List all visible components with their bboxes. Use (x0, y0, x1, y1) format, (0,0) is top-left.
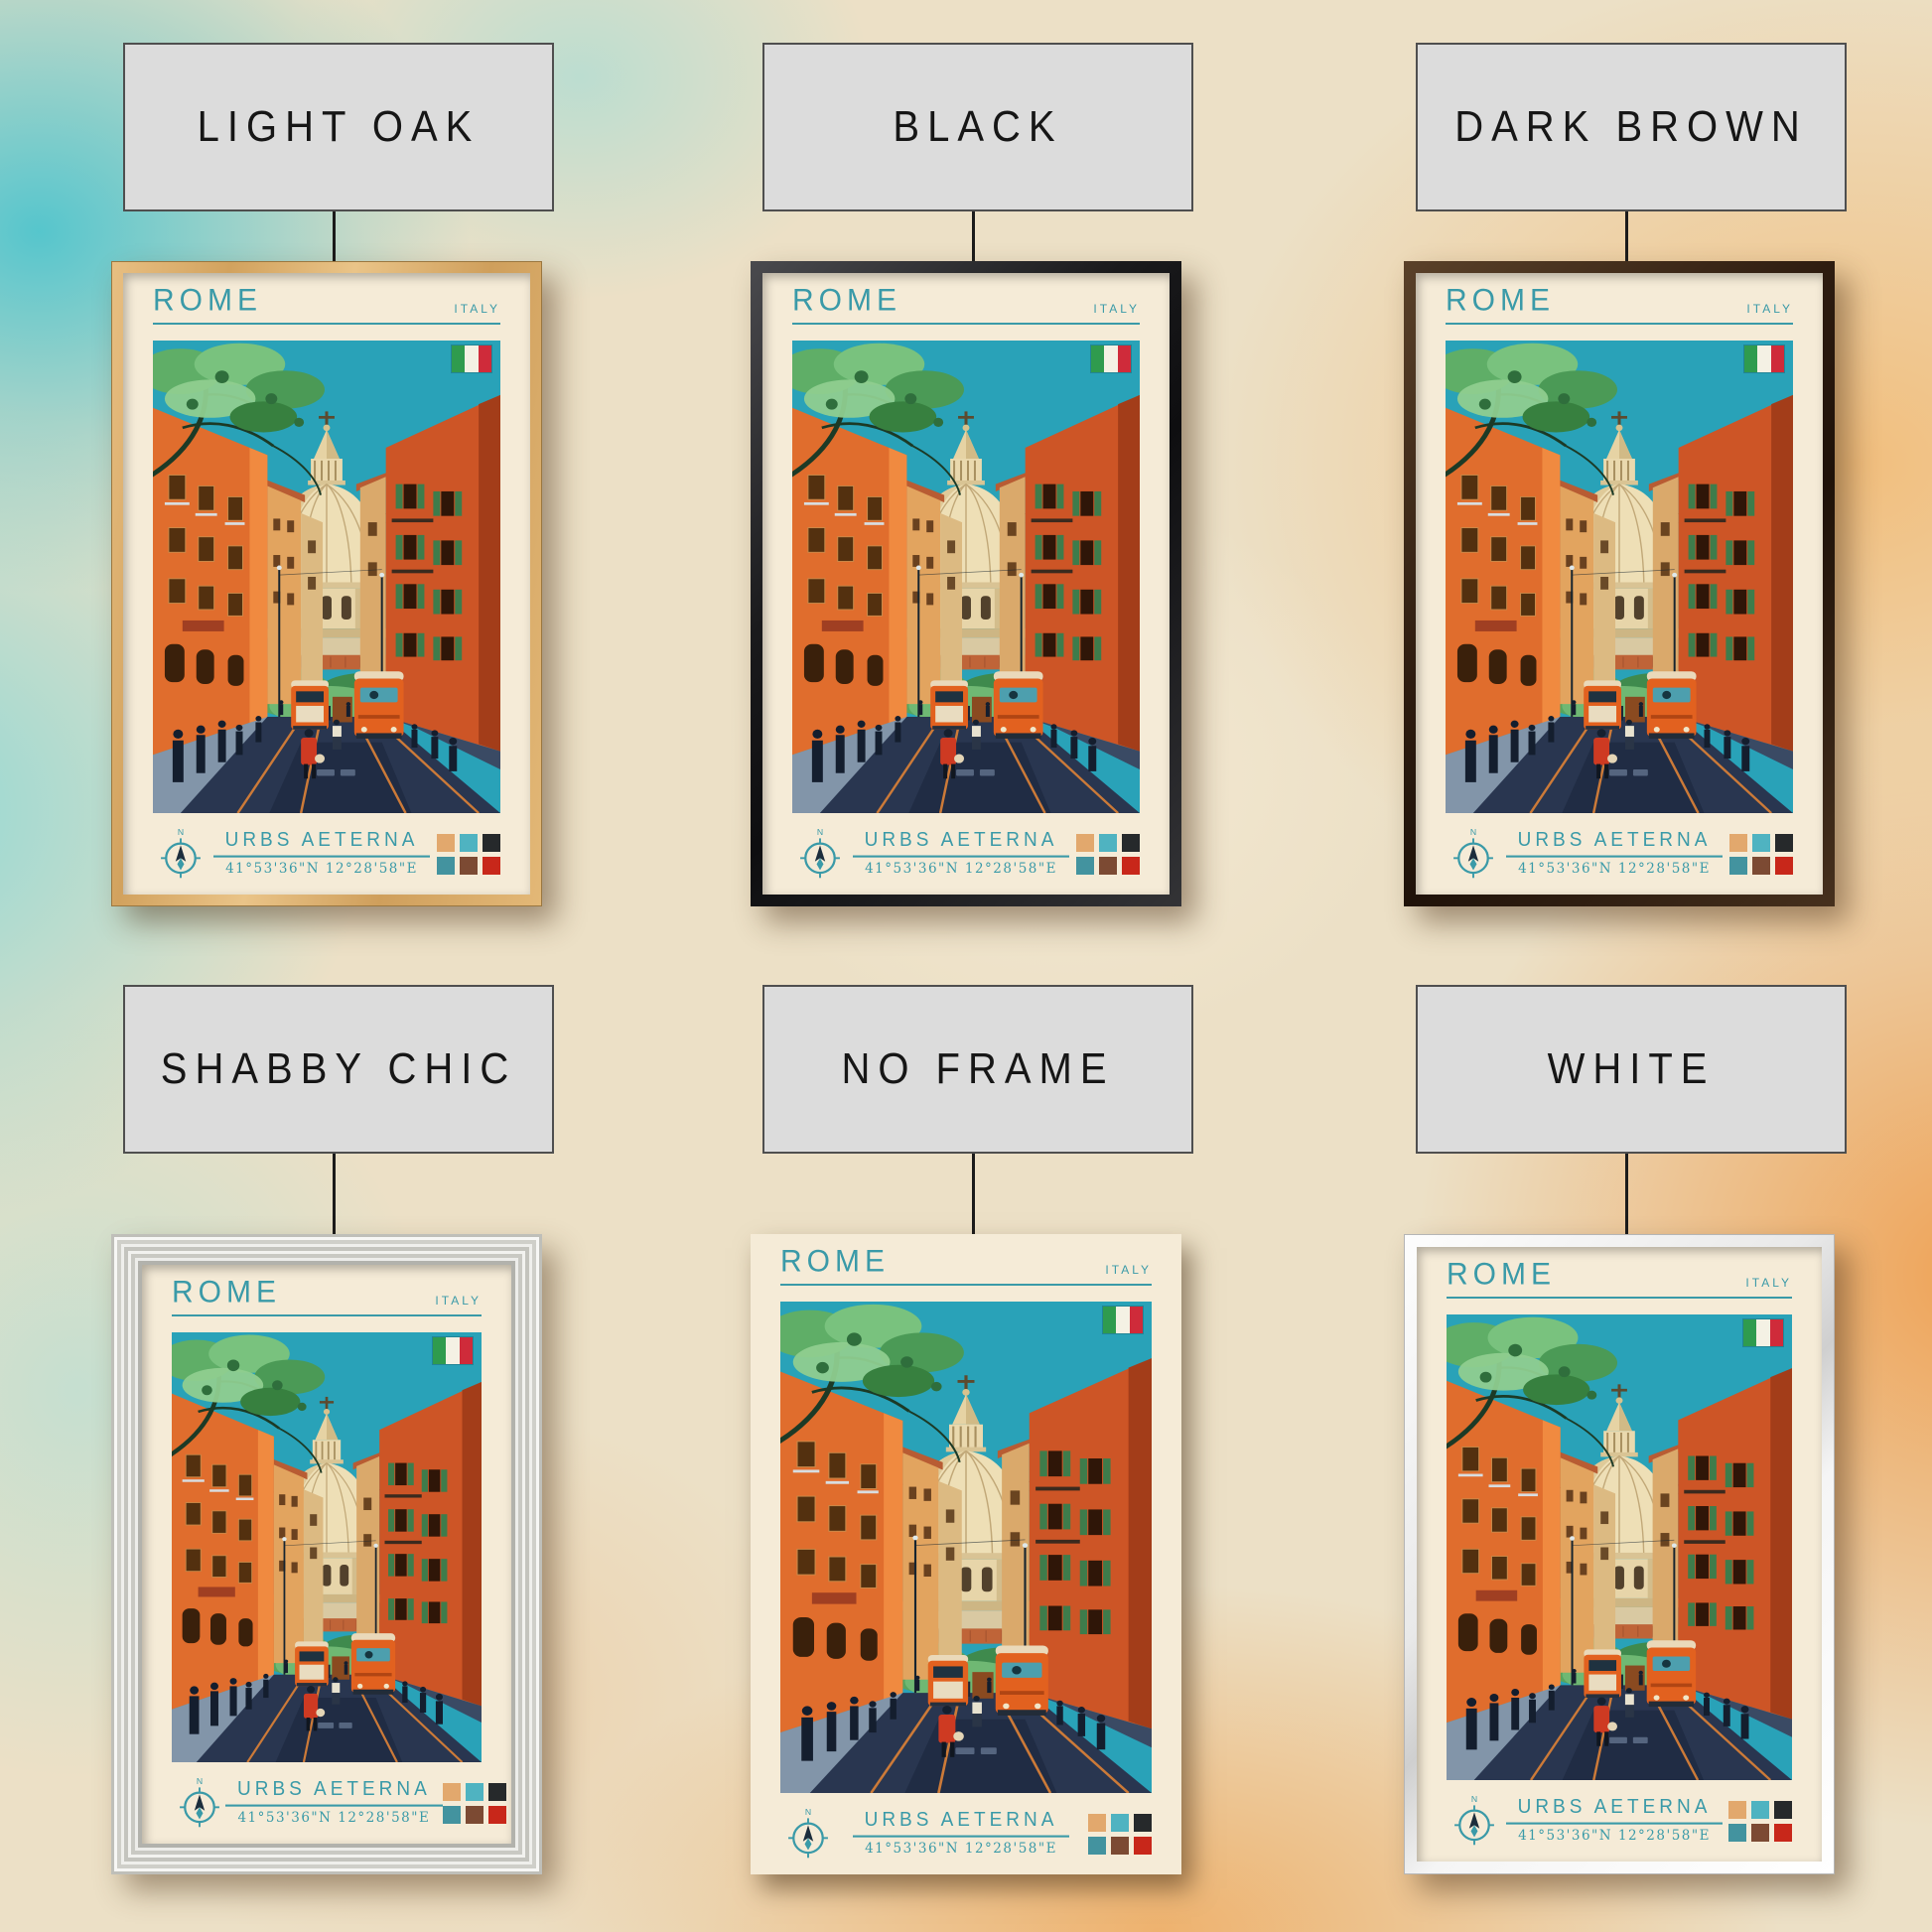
rome-street-scene-illustration (780, 1302, 1152, 1793)
flag-stripe (1091, 345, 1104, 372)
compass-rose-icon: N (1448, 825, 1499, 883)
compass-rose-icon: N (782, 1805, 834, 1863)
palette-swatch (1099, 857, 1117, 875)
palette-swatch (1122, 834, 1140, 852)
palette-swatch (488, 1783, 506, 1801)
connector-line (333, 211, 336, 263)
svg-text:N: N (197, 1776, 203, 1786)
poster-coordinates: 41°53'36"N 12°28'58"E (1500, 1828, 1728, 1844)
header-rule (1446, 323, 1793, 325)
poster-footer: N URBS AETERNA 41°53'36"N 12°28'58"E (1447, 1790, 1792, 1852)
tram-right (351, 1633, 395, 1695)
travel-poster: ROME ITALY (762, 273, 1170, 895)
variant-label-no-frame: NO FRAME (762, 985, 1193, 1154)
palette-swatch (1134, 1814, 1152, 1832)
tram-left (930, 680, 968, 729)
palette-swatch (1775, 857, 1793, 875)
poster-subtitle: URBS AETERNA (1506, 830, 1724, 857)
tram-left (295, 1641, 329, 1686)
svg-text:N: N (178, 827, 184, 837)
poster-country-label: ITALY (435, 1295, 482, 1309)
poster-title: ROME (792, 286, 901, 318)
poster-header: ROME ITALY (172, 1279, 482, 1309)
connector-line (972, 211, 975, 263)
variant-label-shabby-chic: SHABBY CHIC (123, 985, 554, 1154)
italy-flag-icon (1091, 345, 1131, 372)
travel-poster: ROME ITALY (142, 1265, 511, 1844)
palette-swatch (1111, 1814, 1129, 1832)
palette-swatch (483, 857, 500, 875)
poster-footer-text: URBS AETERNA 41°53'36"N 12°28'58"E (1500, 1798, 1728, 1844)
flag-stripe (1118, 345, 1131, 372)
framed-poster-shabby-chic: ROME ITALY (111, 1234, 542, 1874)
italy-flag-icon (1743, 1319, 1783, 1346)
compass-rose-icon: N (155, 825, 207, 883)
poster-artwork (780, 1302, 1152, 1793)
variant-label-text: LIGHT OAK (198, 103, 481, 152)
poster-subtitle: URBS AETERNA (213, 830, 431, 857)
poster-title: ROME (780, 1247, 890, 1279)
poster-subtitle: URBS AETERNA (1506, 1797, 1724, 1824)
tram-left (928, 1655, 968, 1706)
palette-swatch (1728, 1824, 1746, 1842)
travel-poster: ROME ITALY (751, 1234, 1181, 1874)
flag-stripe (460, 1337, 473, 1364)
flag-stripe (452, 345, 465, 372)
tram-right (1647, 671, 1697, 739)
header-rule (780, 1284, 1152, 1286)
poster-footer: N URBS AETERNA 41°53'36"N 12°28'58"E (172, 1772, 482, 1834)
rome-street-scene-illustration (792, 341, 1140, 813)
flag-stripe (1757, 345, 1770, 372)
variant-label-text: NO FRAME (841, 1045, 1114, 1094)
flag-stripe (446, 1337, 459, 1364)
poster-footer: N URBS AETERNA 41°53'36"N 12°28'58"E (1446, 823, 1793, 885)
compass-rose-icon: N (794, 825, 846, 883)
poster-header: ROME ITALY (153, 287, 500, 317)
poster-artwork (172, 1332, 482, 1762)
poster-coordinates: 41°53'36"N 12°28'58"E (834, 1841, 1088, 1857)
palette-swatch (1751, 1824, 1769, 1842)
poster-country-label: ITALY (1093, 303, 1140, 317)
palette-swatch (466, 1806, 483, 1824)
header-rule (172, 1314, 482, 1316)
poster-title: ROME (153, 286, 262, 318)
flag-stripe (1756, 1319, 1769, 1346)
poster-artwork (1446, 341, 1793, 813)
palette-swatch (1775, 834, 1793, 852)
tram-left (1584, 1649, 1621, 1698)
svg-text:N: N (817, 827, 823, 837)
poster-subtitle: URBS AETERNA (853, 1810, 1070, 1837)
flag-stripe (1104, 345, 1117, 372)
rome-street-scene-illustration (1447, 1314, 1792, 1780)
palette-swatch (443, 1806, 461, 1824)
palette-swatch (1751, 1801, 1769, 1819)
compass-rose-icon: N (1449, 1792, 1500, 1850)
poster-country-label: ITALY (1746, 303, 1793, 317)
palette-swatches (1076, 834, 1140, 875)
variant-label-text: WHITE (1548, 1045, 1716, 1094)
palette-swatch (437, 834, 455, 852)
svg-text:N: N (1471, 1794, 1477, 1804)
travel-poster: ROME ITALY (123, 273, 530, 895)
poster-footer-text: URBS AETERNA 41°53'36"N 12°28'58"E (225, 1780, 443, 1826)
palette-swatch (1728, 1801, 1746, 1819)
connector-line (1625, 211, 1628, 263)
flag-stripe (1771, 345, 1784, 372)
rome-street-scene-illustration (153, 341, 500, 813)
poster-country-label: ITALY (454, 303, 500, 317)
palette-swatch (1111, 1837, 1129, 1855)
tram-right (994, 671, 1043, 739)
poster-coordinates: 41°53'36"N 12°28'58"E (207, 861, 437, 877)
variant-label-dark-brown: DARK BROWN (1416, 43, 1847, 211)
palette-swatch (460, 834, 478, 852)
italy-flag-icon (1744, 345, 1784, 372)
poster-title: ROME (172, 1278, 281, 1310)
palette-swatch (1752, 834, 1770, 852)
poster-country-label: ITALY (1745, 1277, 1792, 1291)
palette-swatch (1774, 1801, 1792, 1819)
palette-swatch (1099, 834, 1117, 852)
framed-poster-dark-brown: ROME ITALY (1404, 261, 1835, 906)
palette-swatch (488, 1806, 506, 1824)
palette-swatch (466, 1783, 483, 1801)
header-rule (1447, 1297, 1792, 1299)
variant-label-text: DARK BROWN (1454, 103, 1808, 152)
flag-stripe (1130, 1307, 1143, 1333)
variant-label-white: WHITE (1416, 985, 1847, 1154)
variant-label-text: BLACK (893, 103, 1062, 152)
poster-coordinates: 41°53'36"N 12°28'58"E (1499, 861, 1729, 877)
connector-line (333, 1154, 336, 1236)
variant-label-black: BLACK (762, 43, 1193, 211)
palette-swatches (1728, 1801, 1792, 1842)
poster-footer-text: URBS AETERNA 41°53'36"N 12°28'58"E (1499, 831, 1729, 877)
svg-text:N: N (1470, 827, 1476, 837)
flag-stripe (1744, 345, 1757, 372)
poster-header: ROME ITALY (1446, 287, 1793, 317)
italy-flag-icon (433, 1337, 473, 1364)
connector-line (1625, 1154, 1628, 1236)
palette-swatches (1729, 834, 1793, 875)
palette-swatch (483, 834, 500, 852)
palette-swatches (1088, 1814, 1152, 1855)
flag-stripe (1770, 1319, 1783, 1346)
rome-street-scene-illustration (172, 1332, 482, 1762)
poster-coordinates: 41°53'36"N 12°28'58"E (846, 861, 1076, 877)
poster-footer-text: URBS AETERNA 41°53'36"N 12°28'58"E (834, 1811, 1088, 1857)
italy-flag-icon (1103, 1307, 1143, 1333)
palette-swatch (460, 857, 478, 875)
rome-street-scene-illustration (1446, 341, 1793, 813)
poster-subtitle: URBS AETERNA (225, 1779, 443, 1806)
header-rule (792, 323, 1140, 325)
italy-flag-icon (452, 345, 491, 372)
poster-subtitle: URBS AETERNA (853, 830, 1070, 857)
poster-footer-text: URBS AETERNA 41°53'36"N 12°28'58"E (207, 831, 437, 877)
poster-coordinates: 41°53'36"N 12°28'58"E (225, 1810, 443, 1826)
flag-stripe (1116, 1307, 1129, 1333)
poster-artwork (792, 341, 1140, 813)
framed-poster-light-oak: ROME ITALY (111, 261, 542, 906)
tram-right (354, 671, 404, 739)
poster-artwork (153, 341, 500, 813)
poster-footer-text: URBS AETERNA 41°53'36"N 12°28'58"E (846, 831, 1076, 877)
poster-footer: N URBS AETERNA 41°53'36"N 12°28'58"E (780, 1803, 1152, 1864)
framed-poster-no-frame: ROME ITALY (751, 1234, 1181, 1874)
connector-line (972, 1154, 975, 1236)
palette-swatch (1134, 1837, 1152, 1855)
framed-poster-black: ROME ITALY (751, 261, 1181, 906)
palette-swatch (1752, 857, 1770, 875)
palette-swatch (1729, 834, 1747, 852)
poster-title: ROME (1446, 286, 1555, 318)
flag-stripe (465, 345, 478, 372)
palette-swatches (437, 834, 500, 875)
palette-swatch (1076, 834, 1094, 852)
palette-swatch (1729, 857, 1747, 875)
poster-artwork (1447, 1314, 1792, 1780)
palette-swatch (1088, 1814, 1106, 1832)
framed-poster-white: ROME ITALY (1404, 1234, 1835, 1874)
poster-header: ROME ITALY (780, 1248, 1152, 1278)
tram-left (291, 680, 329, 729)
poster-header: ROME ITALY (792, 287, 1140, 317)
poster-title: ROME (1447, 1260, 1556, 1292)
palette-swatches (443, 1783, 506, 1824)
palette-swatch (1122, 857, 1140, 875)
flag-stripe (1743, 1319, 1756, 1346)
poster-footer: N URBS AETERNA 41°53'36"N 12°28'58"E (153, 823, 500, 885)
tram-left (1584, 680, 1621, 729)
palette-swatch (1076, 857, 1094, 875)
travel-poster: ROME ITALY (1416, 273, 1823, 895)
poster-header: ROME ITALY (1447, 1261, 1792, 1291)
tram-right (1647, 1640, 1696, 1707)
palette-swatch (437, 857, 455, 875)
poster-country-label: ITALY (1105, 1264, 1152, 1278)
palette-swatch (1088, 1837, 1106, 1855)
svg-text:N: N (805, 1807, 811, 1817)
header-rule (153, 323, 500, 325)
poster-footer: N URBS AETERNA 41°53'36"N 12°28'58"E (792, 823, 1140, 885)
palette-swatch (443, 1783, 461, 1801)
flag-stripe (433, 1337, 446, 1364)
tram-right (996, 1646, 1048, 1716)
flag-stripe (479, 345, 491, 372)
palette-swatch (1774, 1824, 1792, 1842)
travel-poster: ROME ITALY (1417, 1247, 1822, 1862)
flag-stripe (1103, 1307, 1116, 1333)
variant-label-light-oak: LIGHT OAK (123, 43, 554, 211)
variant-label-text: SHABBY CHIC (161, 1045, 516, 1094)
compass-rose-icon: N (174, 1774, 225, 1832)
